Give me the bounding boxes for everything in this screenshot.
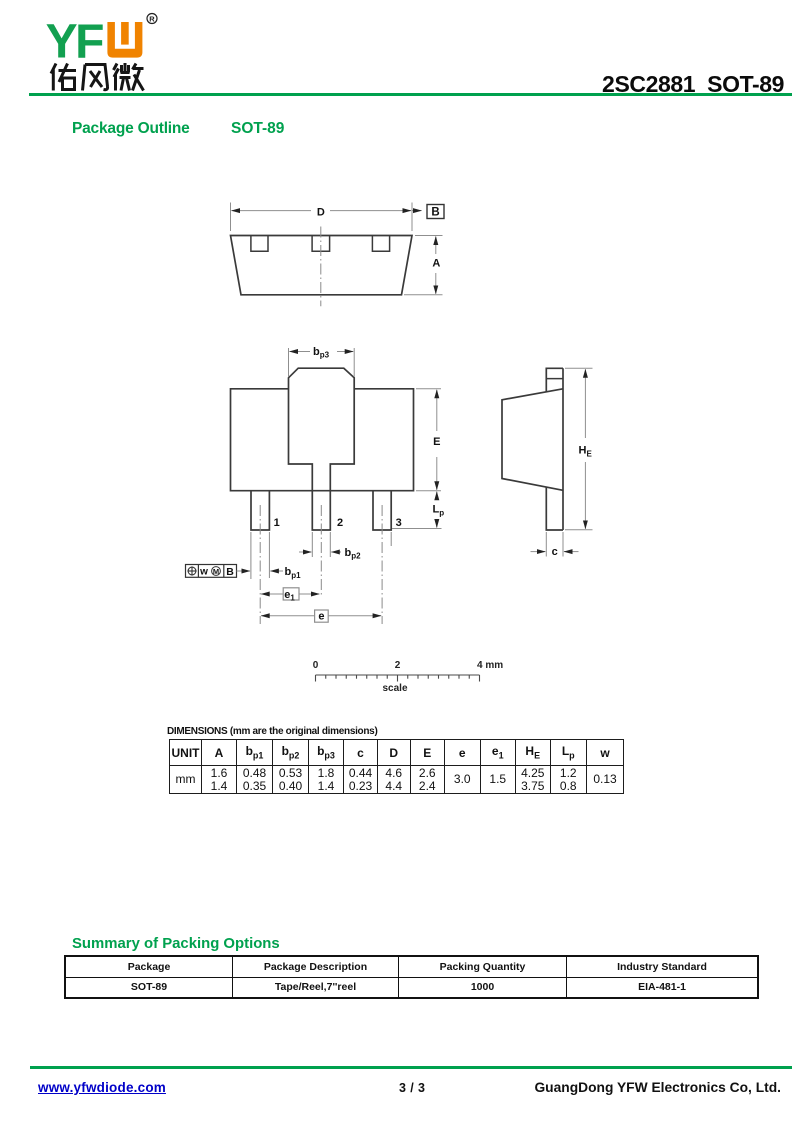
svg-text:c: c — [552, 546, 558, 558]
svg-text:0: 0 — [313, 660, 319, 671]
svg-text:R: R — [149, 14, 155, 23]
svg-text:2: 2 — [337, 517, 343, 529]
svg-text:D: D — [317, 206, 325, 218]
svg-text:1: 1 — [274, 517, 280, 529]
svg-text:w: w — [199, 567, 208, 578]
svg-text:bp3: bp3 — [313, 346, 330, 360]
svg-text:YF: YF — [46, 16, 104, 69]
svg-text:bp2: bp2 — [345, 547, 362, 561]
svg-text:e: e — [318, 611, 324, 623]
svg-text:B: B — [431, 207, 439, 219]
svg-text:Lp: Lp — [433, 504, 445, 518]
svg-text:E: E — [433, 436, 440, 448]
svg-text:M: M — [213, 567, 219, 576]
svg-text:e1: e1 — [284, 589, 295, 603]
svg-text:HE: HE — [579, 445, 593, 459]
svg-text:4 mm: 4 mm — [477, 660, 503, 671]
svg-text:scale: scale — [382, 683, 407, 694]
svg-text:2: 2 — [395, 660, 401, 671]
svg-text:A: A — [432, 258, 440, 270]
svg-text:bp1: bp1 — [285, 566, 302, 580]
svg-text:3: 3 — [396, 517, 402, 529]
svg-text:B: B — [226, 566, 234, 578]
